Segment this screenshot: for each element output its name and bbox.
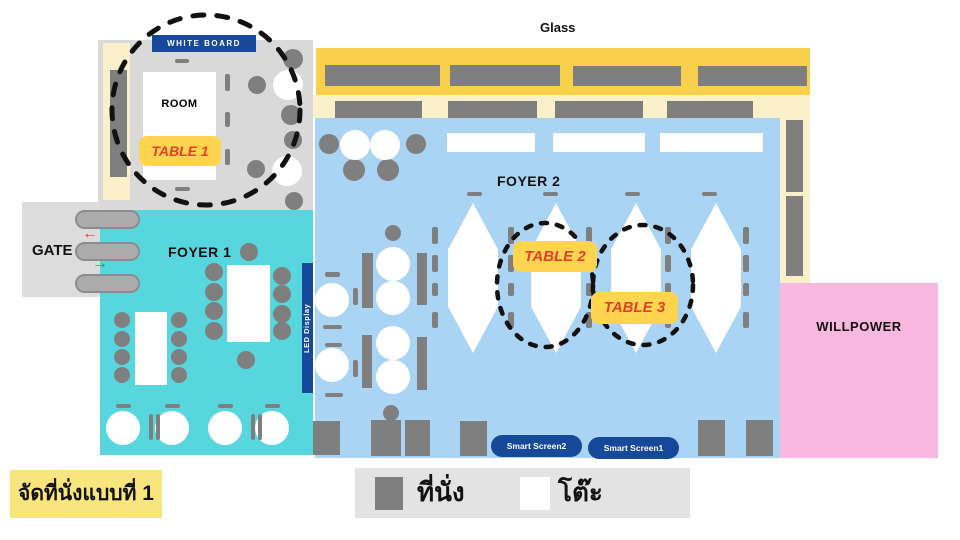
seat-icon xyxy=(273,322,291,340)
seat-dash xyxy=(432,312,438,328)
seat-dash xyxy=(156,414,160,440)
seat-bench xyxy=(450,65,560,86)
legend-table-swatch xyxy=(520,477,550,510)
seat-icon xyxy=(377,159,399,181)
seat-bench xyxy=(405,420,430,456)
seat-dash xyxy=(325,343,342,347)
seat-dash xyxy=(323,325,342,329)
seat-dash xyxy=(743,255,749,272)
seat-icon xyxy=(248,76,266,94)
seat-dash xyxy=(325,393,343,397)
seat-dash xyxy=(353,288,358,305)
seat-dash xyxy=(225,74,230,91)
seat-icon xyxy=(247,160,265,178)
seat-icon xyxy=(319,134,339,154)
round-table xyxy=(272,156,302,186)
table-rect xyxy=(660,133,763,152)
round-table xyxy=(376,360,410,394)
seat-dash xyxy=(432,283,438,296)
seat-bench xyxy=(110,70,127,177)
floor-plan: WILLPOWER WHITE BOARD ROOM TABLE 1 Glass… xyxy=(0,0,960,540)
round-table xyxy=(273,70,303,100)
seat-icon xyxy=(273,285,291,303)
seat-bench xyxy=(335,101,422,118)
seat-dash xyxy=(175,59,189,63)
seat-bench xyxy=(786,196,803,276)
seat-dash xyxy=(149,414,153,440)
seat-icon xyxy=(406,134,426,154)
legend: ที่นั่ง โต๊ะ xyxy=(355,468,690,518)
smart-screen-2: Smart Screen2 xyxy=(491,435,582,457)
seat-bench xyxy=(555,101,643,118)
seat-bench xyxy=(417,253,427,305)
table-rect xyxy=(553,133,645,152)
seat-dash xyxy=(743,312,749,328)
seat-icon xyxy=(114,331,130,347)
round-table xyxy=(315,283,349,317)
seat-bench xyxy=(746,420,773,456)
seat-dash xyxy=(175,187,190,191)
exit-arrow-icon: ← xyxy=(82,227,98,241)
foyer1-label: FOYER 1 xyxy=(168,244,231,260)
seat-bench xyxy=(698,420,725,456)
seat-bench xyxy=(448,101,537,118)
seat-icon xyxy=(114,312,130,328)
seat-dash xyxy=(116,404,131,408)
seat-dash xyxy=(432,227,438,244)
seat-icon xyxy=(205,263,223,281)
seat-dash xyxy=(508,312,514,328)
table-rect xyxy=(135,312,167,385)
seat-icon xyxy=(281,105,301,125)
round-table xyxy=(376,247,410,281)
seat-dash xyxy=(543,192,558,196)
round-table xyxy=(106,411,140,445)
seat-bench xyxy=(698,66,807,86)
seat-icon xyxy=(285,192,303,210)
round-table xyxy=(155,411,189,445)
page-title: จัดที่นั่งแบบที่ 1 xyxy=(10,470,162,518)
seat-bench xyxy=(325,65,440,86)
round-table xyxy=(315,348,349,382)
seat-dash xyxy=(225,149,230,165)
seat-dash xyxy=(508,283,514,296)
seat-dash xyxy=(467,192,482,196)
seat-bench xyxy=(313,421,340,455)
seat-dash xyxy=(665,255,671,272)
round-table xyxy=(370,130,400,160)
seat-icon xyxy=(205,322,223,340)
seat-icon xyxy=(205,302,223,320)
seat-icon xyxy=(171,331,187,347)
seat-bench xyxy=(362,335,372,388)
white-board: WHITE BOARD xyxy=(152,35,256,52)
seat-bench xyxy=(417,337,427,390)
seat-dash xyxy=(325,272,340,277)
seat-icon xyxy=(114,349,130,365)
led-display: LED Display xyxy=(302,263,313,393)
willpower-room: WILLPOWER xyxy=(780,283,938,458)
seat-dash xyxy=(432,255,438,272)
seat-dash xyxy=(743,227,749,244)
seat-bench xyxy=(667,101,753,118)
seat-dash xyxy=(218,404,233,408)
table1-badge: TABLE 1 xyxy=(139,136,221,166)
legend-seat-label: ที่นั่ง xyxy=(417,468,465,518)
seat-bench xyxy=(460,421,487,456)
round-table xyxy=(340,130,370,160)
seat-bench xyxy=(371,420,401,456)
seat-dash xyxy=(265,404,280,408)
table-rect xyxy=(227,265,270,342)
seat-icon xyxy=(171,312,187,328)
seat-dash xyxy=(508,227,514,244)
seat-bench xyxy=(573,66,681,86)
seat-dash xyxy=(165,404,180,408)
foyer2-label: FOYER 2 xyxy=(497,173,560,189)
seat-icon xyxy=(171,349,187,365)
seat-icon xyxy=(114,367,130,383)
seat-dash xyxy=(586,283,592,296)
entry-arrow-icon: → xyxy=(92,257,108,271)
seat-dash xyxy=(625,192,640,196)
seat-icon xyxy=(273,267,291,285)
seat-icon xyxy=(284,131,302,149)
legend-seat-swatch xyxy=(375,477,403,510)
seat-icon xyxy=(385,225,401,241)
glass-label: Glass xyxy=(540,20,575,35)
table3-badge: TABLE 3 xyxy=(591,292,678,324)
seat-bench xyxy=(362,253,373,308)
seat-icon xyxy=(205,283,223,301)
seat-icon xyxy=(240,243,258,261)
round-table xyxy=(376,326,410,360)
seat-dash xyxy=(258,414,262,440)
seat-dash xyxy=(225,112,230,127)
legend-table-label: โต๊ะ xyxy=(558,468,603,518)
seat-icon xyxy=(383,405,399,421)
seat-icon xyxy=(273,305,291,323)
seat-icon xyxy=(171,367,187,383)
seat-dash xyxy=(353,360,358,377)
gate-turnstile xyxy=(75,274,140,293)
seat-bench xyxy=(786,120,803,192)
seat-dash xyxy=(665,227,671,244)
table-rect xyxy=(447,133,535,152)
table2-badge: TABLE 2 xyxy=(513,241,597,272)
seat-dash xyxy=(251,414,255,440)
round-table xyxy=(376,281,410,315)
smart-screen-1: Smart Screen1 xyxy=(588,437,679,459)
round-table xyxy=(208,411,242,445)
seat-dash xyxy=(743,283,749,296)
seat-icon xyxy=(283,49,303,69)
gate-label: GATE xyxy=(32,242,73,259)
seat-dash xyxy=(702,192,717,196)
seat-icon xyxy=(343,159,365,181)
seat-icon xyxy=(237,351,255,369)
